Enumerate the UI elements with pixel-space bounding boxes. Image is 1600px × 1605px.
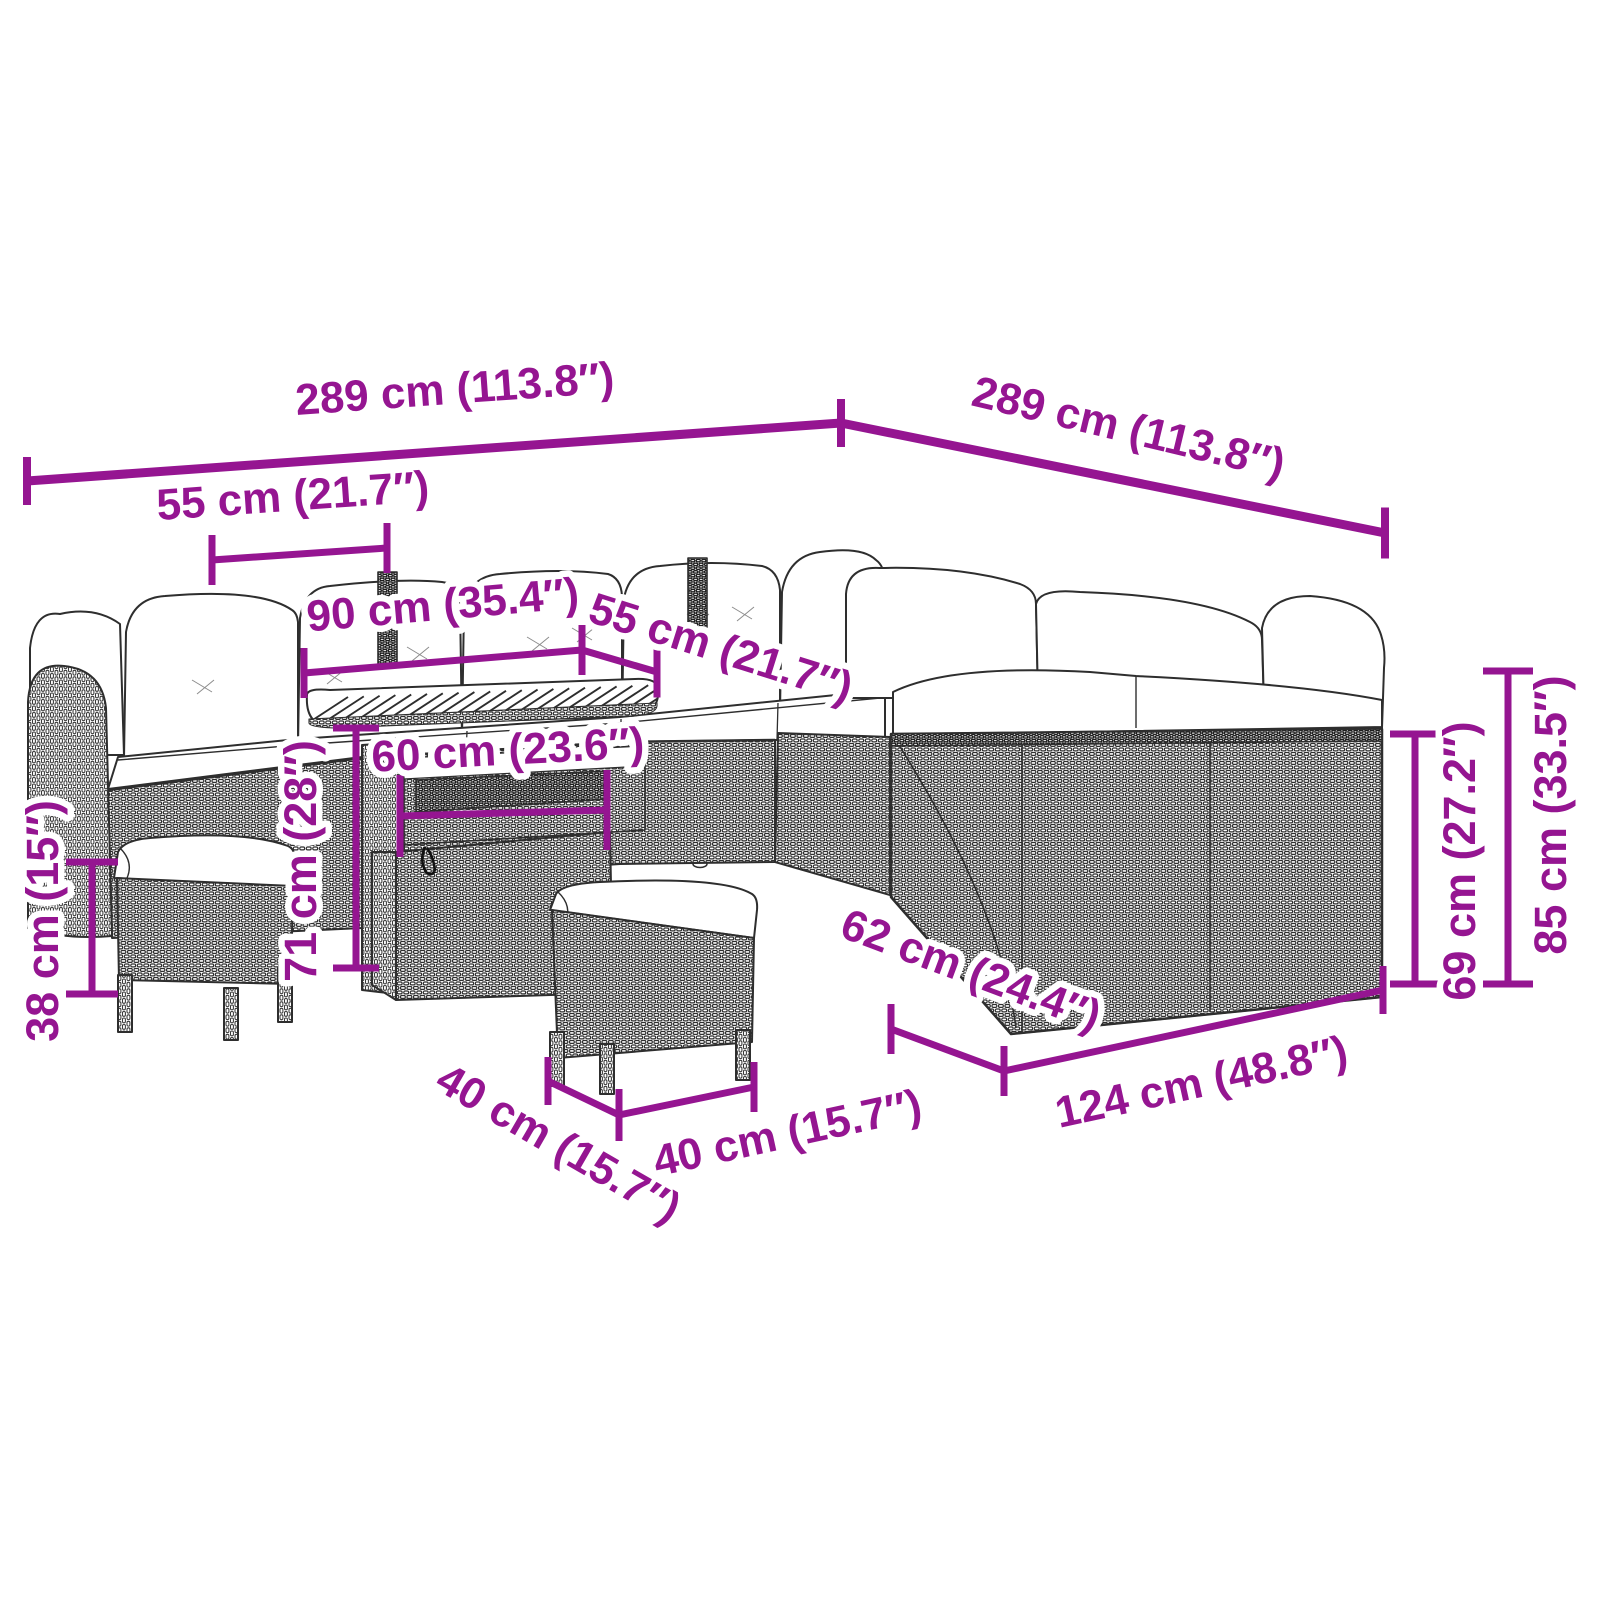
svg-text:85 cm (33.5″): 85 cm (33.5″) xyxy=(1525,675,1576,954)
svg-text:69 cm (27.2″): 69 cm (27.2″) xyxy=(1434,721,1485,1000)
svg-text:38 cm (15″): 38 cm (15″) xyxy=(17,800,68,1042)
svg-text:71 cm (28″): 71 cm (28″) xyxy=(275,740,326,982)
